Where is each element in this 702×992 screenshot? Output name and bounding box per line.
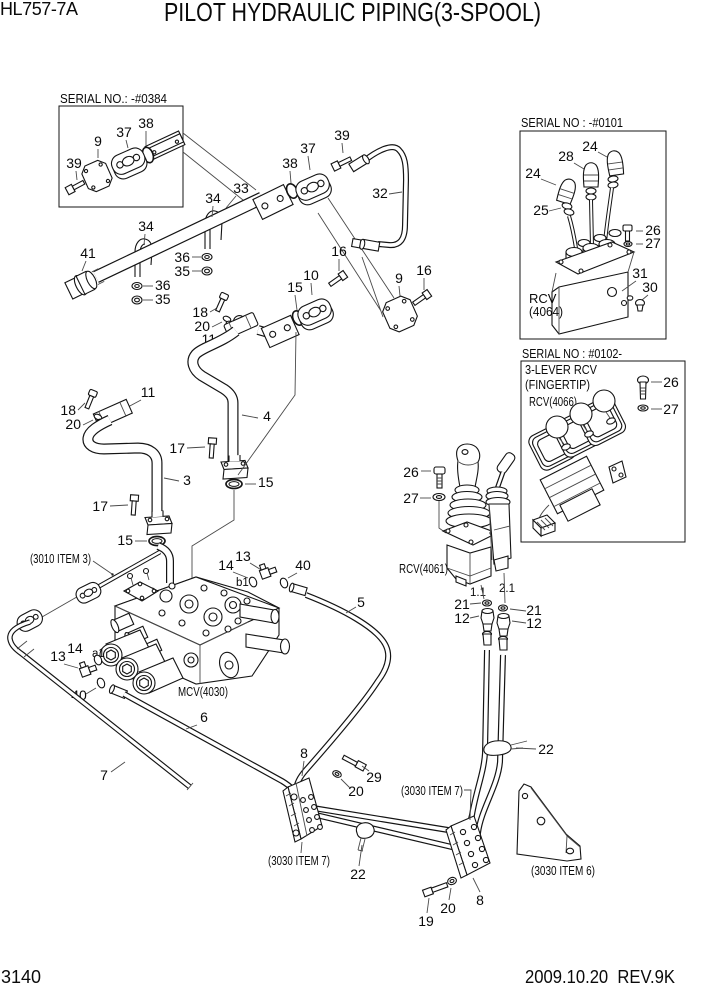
svg-text:24: 24 xyxy=(582,138,598,154)
svg-text:(3030 ITEM 7): (3030 ITEM 7) xyxy=(268,853,330,868)
svg-text:38: 38 xyxy=(138,115,154,131)
svg-text:10: 10 xyxy=(303,267,319,283)
svg-text:15: 15 xyxy=(287,279,303,295)
svg-text:13: 13 xyxy=(235,548,251,564)
svg-text:35: 35 xyxy=(174,263,190,279)
svg-text:32: 32 xyxy=(372,185,388,201)
svg-text:37: 37 xyxy=(300,140,316,156)
svg-text:5: 5 xyxy=(357,594,365,610)
svg-text:9: 9 xyxy=(94,133,102,149)
svg-text:34: 34 xyxy=(138,218,154,234)
svg-text:27: 27 xyxy=(403,490,419,506)
svg-text:(FINGERTIP): (FINGERTIP) xyxy=(525,377,590,392)
svg-text:25: 25 xyxy=(533,202,549,218)
svg-text:3140: 3140 xyxy=(1,967,41,987)
svg-text:29: 29 xyxy=(366,769,382,785)
svg-text:SERIAL NO : #0102-: SERIAL NO : #0102- xyxy=(522,346,622,361)
svg-text:16: 16 xyxy=(416,262,432,278)
svg-text:13: 13 xyxy=(50,648,66,664)
svg-text:26: 26 xyxy=(663,374,679,390)
svg-text:14: 14 xyxy=(67,640,83,656)
svg-text:3-LEVER RCV: 3-LEVER RCV xyxy=(525,362,597,377)
svg-text:12: 12 xyxy=(454,610,470,626)
svg-text:SERIAL NO.: -#0384: SERIAL NO.: -#0384 xyxy=(60,91,167,106)
svg-text:(3030 ITEM 7): (3030 ITEM 7) xyxy=(401,783,463,798)
svg-text:RCV(4066): RCV(4066) xyxy=(529,394,577,409)
svg-text:39: 39 xyxy=(66,155,82,171)
svg-text:30: 30 xyxy=(642,279,658,295)
svg-text:22: 22 xyxy=(350,866,366,882)
svg-text:PILOT HYDRAULIC PIPING(3-SPOOL: PILOT HYDRAULIC PIPING(3-SPOOL) xyxy=(164,0,541,27)
svg-text:12: 12 xyxy=(526,615,542,631)
svg-text:35: 35 xyxy=(155,291,171,307)
svg-text:6: 6 xyxy=(200,709,208,725)
svg-text:19: 19 xyxy=(418,913,434,929)
svg-text:22: 22 xyxy=(538,741,554,757)
svg-text:b1: b1 xyxy=(236,577,249,589)
svg-text:33: 33 xyxy=(233,180,249,196)
svg-text:15: 15 xyxy=(117,532,133,548)
svg-text:20: 20 xyxy=(348,783,364,799)
svg-text:27: 27 xyxy=(663,401,679,417)
svg-text:7: 7 xyxy=(100,767,108,783)
svg-text:39: 39 xyxy=(334,127,350,143)
svg-text:(3010 ITEM 3): (3010 ITEM 3) xyxy=(30,551,91,566)
svg-text:RCV(4061): RCV(4061) xyxy=(399,561,448,576)
svg-text:(4064): (4064) xyxy=(529,304,563,319)
svg-text:17: 17 xyxy=(169,440,185,456)
svg-text:37: 37 xyxy=(116,124,132,140)
svg-text:14: 14 xyxy=(218,557,234,573)
svg-text:2009.10.20 REV.9K: 2009.10.20 REV.9K xyxy=(525,967,675,987)
svg-text:8: 8 xyxy=(476,892,484,908)
svg-text:9: 9 xyxy=(395,270,403,286)
svg-text:34: 34 xyxy=(205,190,221,206)
svg-text:HL757-7A: HL757-7A xyxy=(0,0,78,19)
svg-text:(3030 ITEM 6): (3030 ITEM 6) xyxy=(531,863,595,878)
svg-text:4: 4 xyxy=(263,408,271,424)
svg-text:20: 20 xyxy=(440,900,456,916)
svg-text:26: 26 xyxy=(403,464,419,480)
svg-text:27: 27 xyxy=(645,235,661,251)
svg-text:40: 40 xyxy=(295,557,311,573)
svg-text:MCV(4030): MCV(4030) xyxy=(178,684,228,699)
svg-text:20: 20 xyxy=(65,416,81,432)
svg-text:15: 15 xyxy=(258,474,274,490)
svg-text:17: 17 xyxy=(92,498,108,514)
svg-text:SERIAL NO : -#0101: SERIAL NO : -#0101 xyxy=(521,115,623,130)
svg-text:38: 38 xyxy=(282,155,298,171)
svg-text:8: 8 xyxy=(300,745,308,761)
svg-text:41: 41 xyxy=(80,245,96,261)
svg-text:2.1: 2.1 xyxy=(499,583,515,595)
svg-text:16: 16 xyxy=(331,243,347,259)
svg-text:24: 24 xyxy=(525,165,541,181)
svg-text:3: 3 xyxy=(183,472,191,488)
svg-text:11: 11 xyxy=(141,384,156,400)
svg-text:28: 28 xyxy=(558,148,574,164)
